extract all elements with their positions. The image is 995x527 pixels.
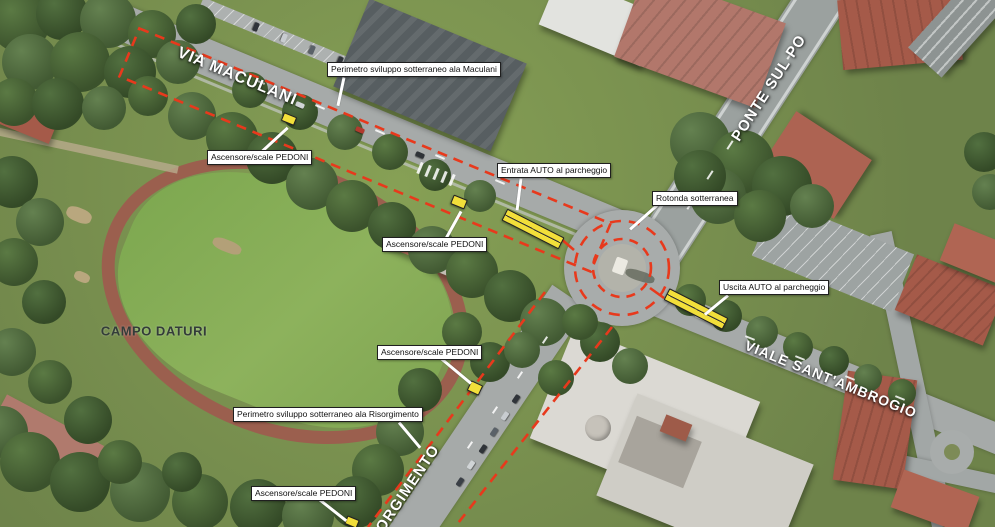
lane-marking — [467, 441, 473, 449]
tree — [0, 328, 36, 376]
car — [280, 33, 288, 43]
callout-ascensore-pedoni-4: Ascensore/scale PEDONI — [251, 486, 356, 501]
lane-marking — [492, 406, 498, 414]
tree — [398, 368, 442, 412]
tree — [98, 440, 142, 484]
lane-marking — [495, 179, 505, 185]
tree — [372, 134, 408, 170]
tree — [176, 4, 216, 44]
tree — [64, 396, 112, 444]
tree — [28, 360, 72, 404]
callout-entrata-auto: Entrata AUTO al parcheggio — [497, 163, 611, 178]
callout-perimetro-risorgimento: Perimetro sviluppo sotterraneo ala Risor… — [233, 407, 423, 422]
tree — [504, 332, 540, 368]
car — [489, 427, 498, 437]
car — [478, 444, 487, 454]
tree — [790, 184, 834, 228]
car — [466, 460, 475, 470]
tree — [82, 86, 126, 130]
place-label-campo-daturi: CAMPO DATURI — [101, 324, 207, 339]
lane-marking — [375, 129, 385, 135]
tree — [0, 238, 38, 286]
tree — [32, 78, 84, 130]
car — [511, 394, 520, 404]
tree — [734, 190, 786, 242]
tree — [128, 76, 168, 116]
car — [415, 151, 425, 159]
tree — [22, 280, 66, 324]
tree — [612, 348, 648, 384]
car — [500, 411, 509, 421]
tree — [538, 360, 574, 396]
callout-perimetro-maculani: Perimetro sviluppo sotterraneo ala Macul… — [327, 62, 501, 77]
tree — [972, 174, 995, 210]
satellite-map[interactable]: VIA MACULANI PONTE SUL PO VIALE SANT'AMB… — [0, 0, 995, 527]
tree — [464, 180, 496, 212]
car — [308, 45, 316, 55]
callout-rotonda-sotterranea: Rotonda sotterranea — [652, 191, 738, 206]
car — [455, 477, 464, 487]
callout-ascensore-pedoni-1: Ascensore/scale PEDONI — [207, 150, 312, 165]
callout-uscita-auto: Uscita AUTO al parcheggio — [719, 280, 829, 295]
tree — [562, 304, 598, 340]
vegetation-layer — [0, 0, 995, 527]
lane-marking — [517, 371, 523, 379]
tree — [16, 198, 64, 246]
car — [252, 22, 260, 32]
tree — [162, 452, 202, 492]
tree — [964, 132, 995, 172]
callout-ascensore-pedoni-3: Ascensore/scale PEDONI — [377, 345, 482, 360]
callout-ascensore-pedoni-2: Ascensore/scale PEDONI — [382, 237, 487, 252]
